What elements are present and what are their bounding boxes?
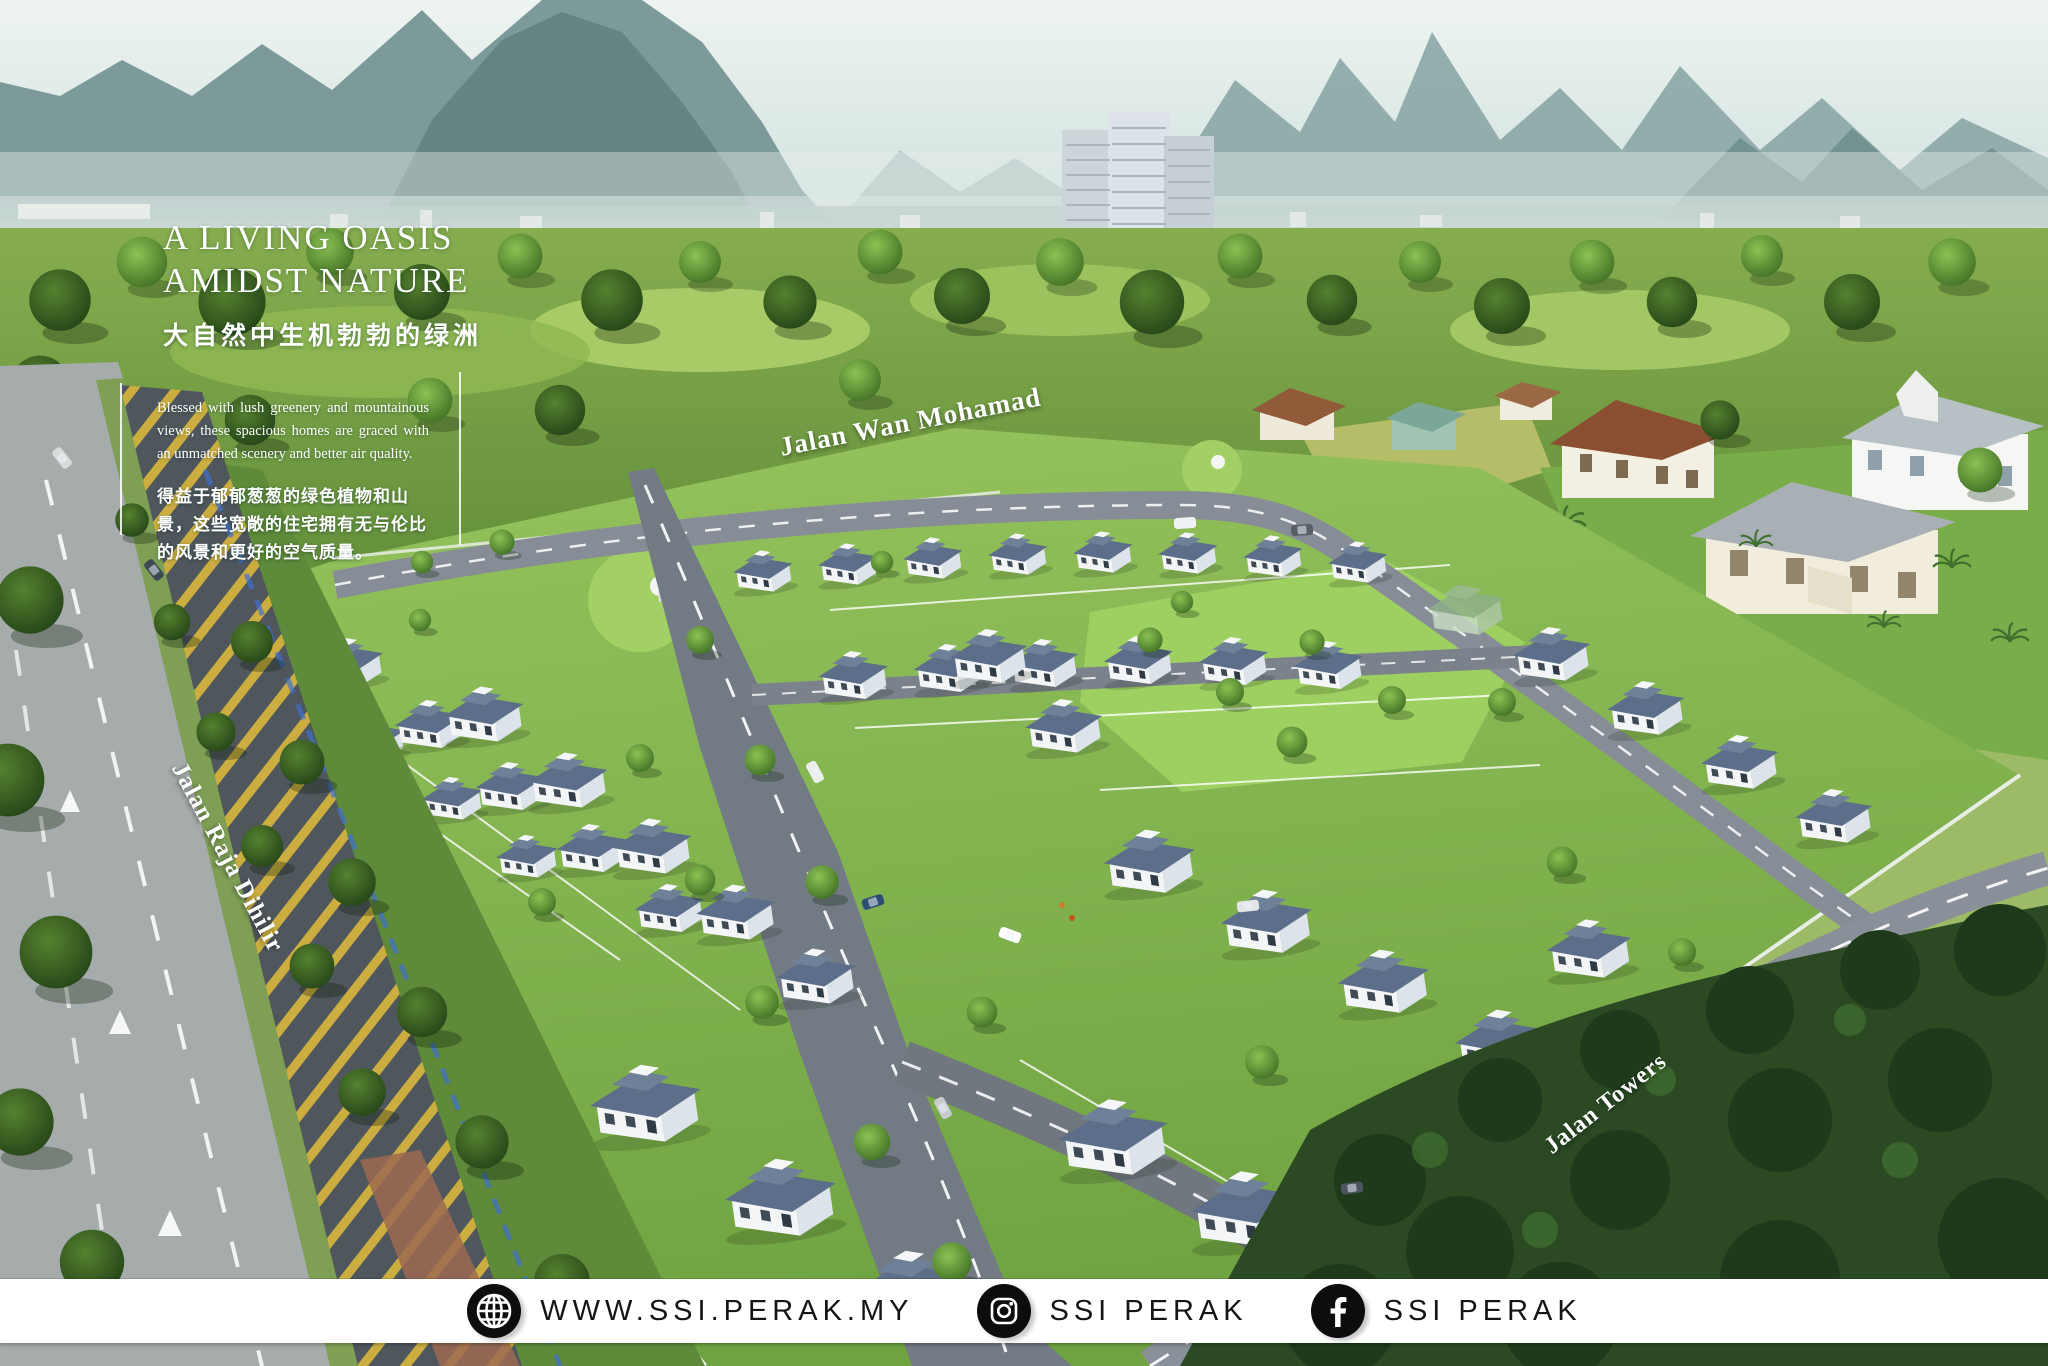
subtitle-chinese: 大自然中生机勃勃的绿洲 bbox=[163, 316, 482, 352]
facebook-label: SSI PERAK bbox=[1384, 1295, 1582, 1328]
aerial-render-illustration bbox=[0, 0, 2048, 1366]
globe-icon bbox=[466, 1283, 522, 1339]
footer-website-item: WWW.SSI.PERAK.MY bbox=[466, 1283, 913, 1339]
text-divider-left bbox=[120, 383, 122, 535]
footer-contact-bar: WWW.SSI.PERAK.MY SSI PERAK SSI PERAK bbox=[0, 1279, 2048, 1343]
footer-facebook-item: SSI PERAK bbox=[1310, 1283, 1582, 1339]
footer-content: WWW.SSI.PERAK.MY SSI PERAK SSI PERAK bbox=[466, 1283, 1582, 1339]
instagram-label: SSI PERAK bbox=[1050, 1295, 1248, 1328]
brochure-page: A LIVING OASIS AMIDST NATURE 大自然中生机勃勃的绿洲… bbox=[0, 0, 2048, 1366]
facebook-icon bbox=[1310, 1283, 1366, 1339]
text-divider-right bbox=[459, 372, 461, 545]
title-line-1: A LIVING OASIS bbox=[163, 218, 454, 257]
website-label: WWW.SSI.PERAK.MY bbox=[540, 1295, 913, 1328]
body-paragraph-english: Blessed with lush greenery and mountaino… bbox=[157, 397, 429, 466]
body-paragraph-chinese: 得益于郁郁葱葱的绿色植物和山景，这些宽敞的住宅拥有无与伦比的风景和更好的空气质量… bbox=[157, 483, 439, 567]
instagram-icon bbox=[976, 1283, 1032, 1339]
hero-title-block: A LIVING OASIS AMIDST NATURE 大自然中生机勃勃的绿洲 bbox=[163, 216, 482, 352]
title-line-2: AMIDST NATURE bbox=[163, 261, 469, 300]
page-title: A LIVING OASIS AMIDST NATURE bbox=[163, 216, 482, 302]
footer-instagram-item: SSI PERAK bbox=[976, 1283, 1248, 1339]
